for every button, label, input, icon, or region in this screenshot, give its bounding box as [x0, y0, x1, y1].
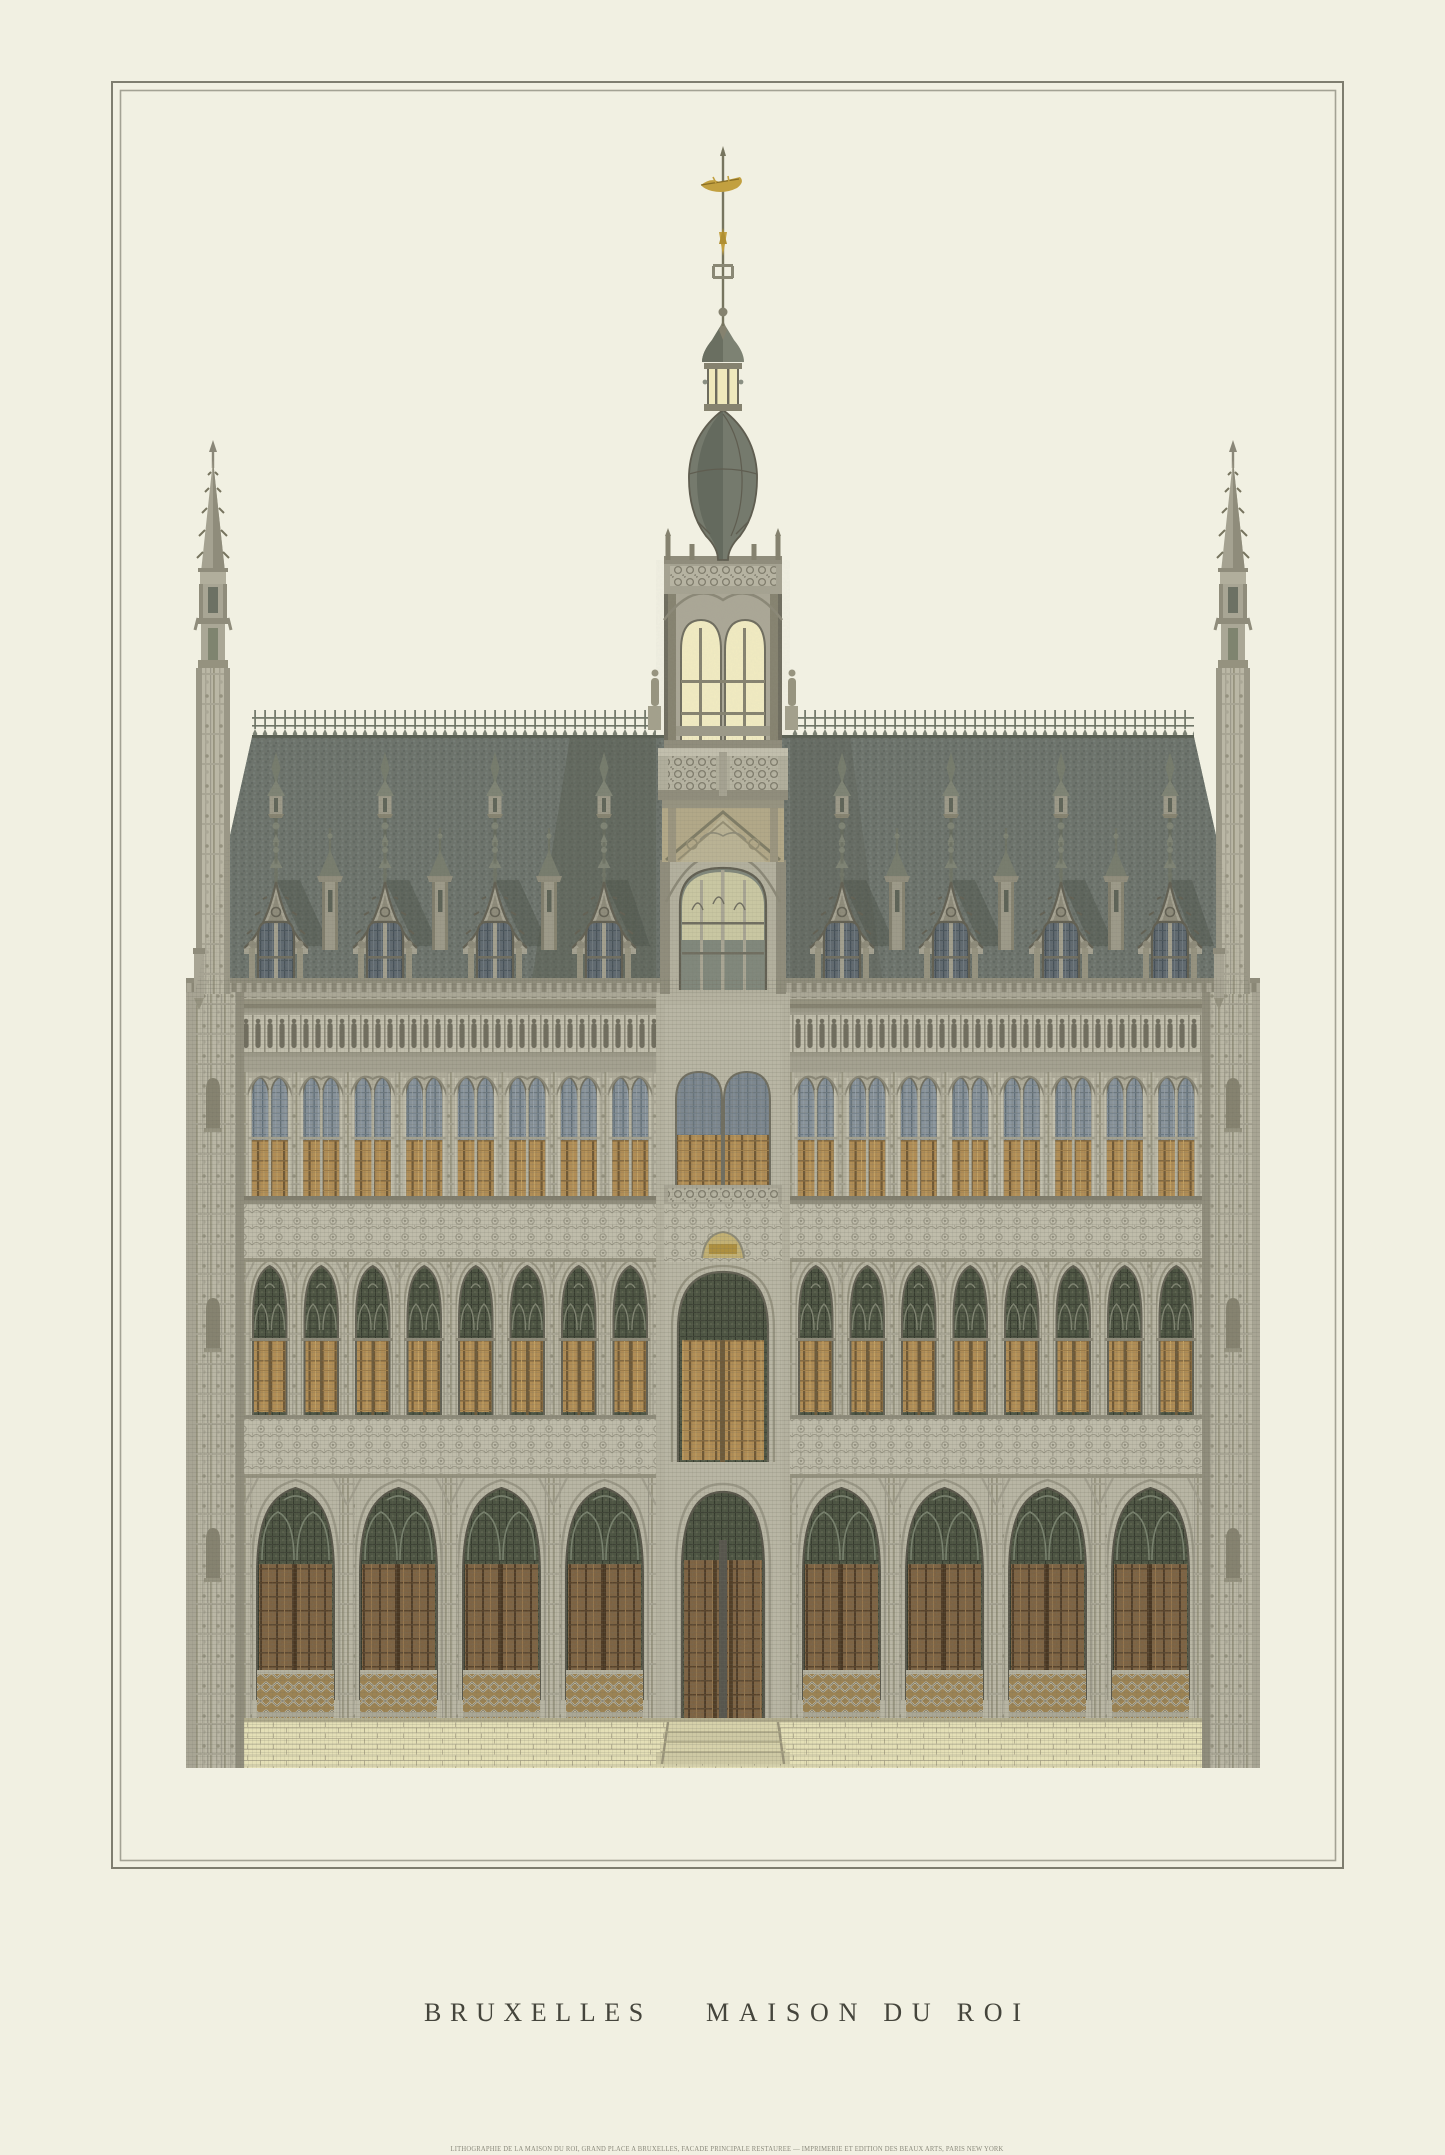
svg-text:LITHOGRAPHIE DE LA MAISON DU R: LITHOGRAPHIE DE LA MAISON DU ROI, GRAND …	[451, 2145, 1004, 2153]
svg-text:BRUXELLES: BRUXELLES	[424, 1998, 653, 2027]
svg-text:MAISON DU ROI: MAISON DU ROI	[706, 1998, 1032, 2027]
